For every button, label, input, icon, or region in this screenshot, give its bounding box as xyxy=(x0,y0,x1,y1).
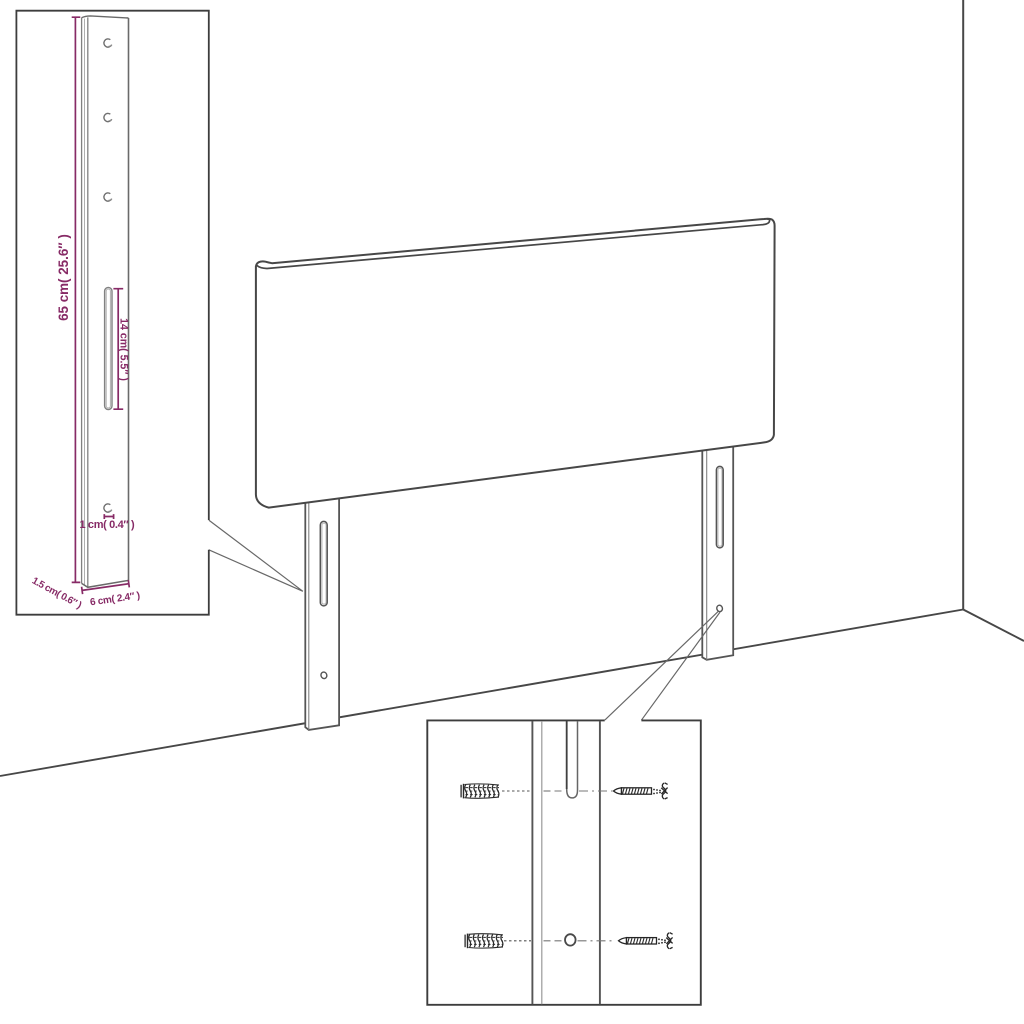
svg-text:1 cm( 0.4″ ): 1 cm( 0.4″ ) xyxy=(79,519,135,531)
svg-text:14 cm( 5.5″ ): 14 cm( 5.5″ ) xyxy=(118,318,130,381)
svg-text:65 cm( 25.6″ ): 65 cm( 25.6″ ) xyxy=(56,234,71,321)
